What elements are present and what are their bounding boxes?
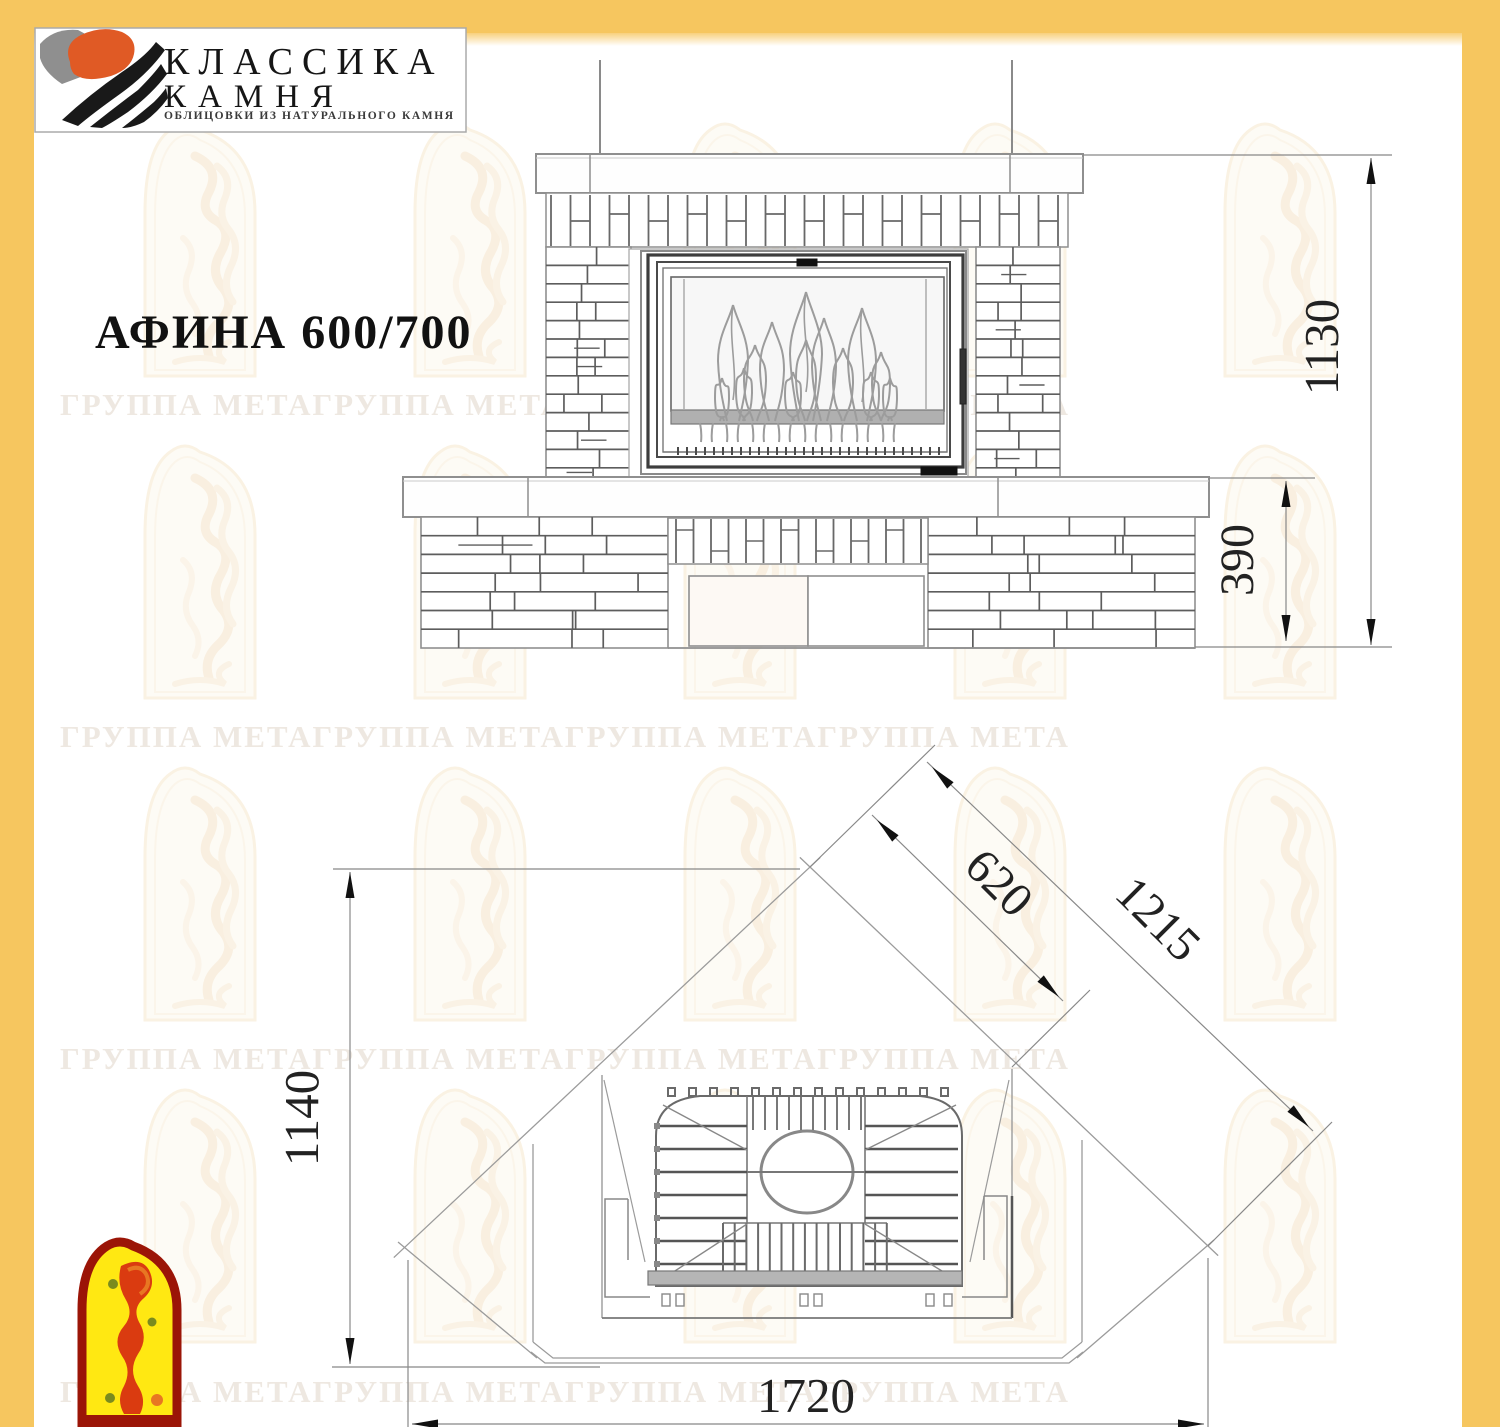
svg-text:1130: 1130 <box>1294 299 1349 395</box>
svg-text:1140: 1140 <box>274 1070 329 1166</box>
svg-text:КЛАССИКА: КЛАССИКА <box>164 41 444 83</box>
svg-text:АФИНА 600/700: АФИНА 600/700 <box>95 306 473 359</box>
svg-text:390: 390 <box>1211 524 1264 596</box>
svg-text:1720: 1720 <box>757 1368 855 1423</box>
svg-text:ОБЛИЦОВКИ ИЗ НАТУРАЛЬНОГО КАМН: ОБЛИЦОВКИ ИЗ НАТУРАЛЬНОГО КАМНЯ <box>164 110 455 122</box>
svg-text:ГРУППА МЕТАГРУППА МЕТАГРУППА М: ГРУППА МЕТАГРУППА МЕТАГРУППА МЕТАГРУППА … <box>60 1374 1070 1409</box>
svg-text:ГРУППА МЕТАГРУППА МЕТАГРУППА М: ГРУППА МЕТАГРУППА МЕТАГРУППА МЕТАГРУППА … <box>60 719 1070 754</box>
svg-text:ГРУППА МЕТАГРУППА МЕТАГРУППА М: ГРУППА МЕТАГРУППА МЕТАГРУППА МЕТАГРУППА … <box>60 1041 1070 1076</box>
